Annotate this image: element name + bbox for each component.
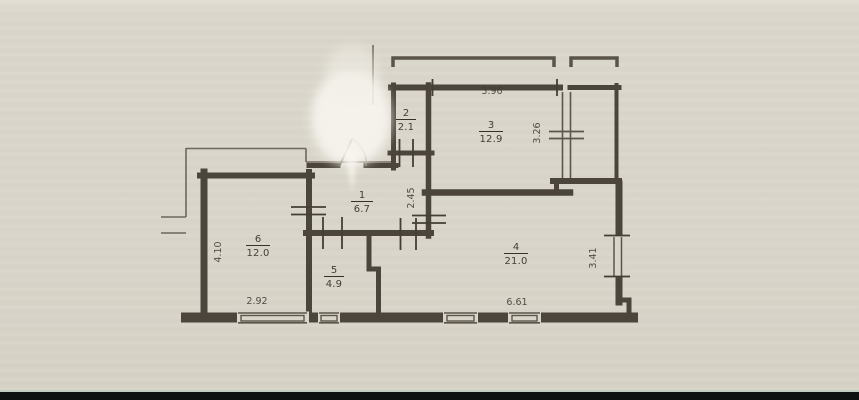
room-label-2: 2 2.1 bbox=[396, 108, 416, 133]
window-symbol bbox=[237, 312, 309, 324]
room-label-5: 5 4.9 bbox=[324, 265, 344, 290]
room5-right-wall bbox=[369, 233, 379, 315]
room-area: 2.1 bbox=[398, 122, 415, 133]
room-area: 6.7 bbox=[354, 204, 371, 215]
room-number: 3 bbox=[488, 120, 494, 131]
balcony-window-symbol bbox=[549, 92, 584, 178]
room-number: 2 bbox=[403, 108, 409, 119]
room-label-1: 1 6.7 bbox=[351, 190, 373, 215]
dimension-hall-depth: 2.45 bbox=[406, 187, 417, 208]
window-symbol bbox=[508, 312, 541, 324]
room-number: 5 bbox=[331, 265, 337, 276]
dimension-room4-depth: 3.41 bbox=[588, 247, 599, 268]
dimension-room3-width: 3.96 bbox=[481, 86, 502, 97]
window-opening bbox=[611, 236, 625, 277]
room-label-3: 3 12.9 bbox=[479, 120, 503, 145]
room-number: 6 bbox=[255, 234, 261, 245]
wall-stub bbox=[393, 58, 554, 67]
scanned-floor-plan-photo: 1 6.7 2 2.1 3 12.9 4 21.0 5 4.9 6 12.0 bbox=[0, 0, 859, 400]
watermark-drip bbox=[344, 148, 359, 192]
room-area: 12.9 bbox=[479, 134, 502, 145]
window-sill bbox=[241, 316, 304, 322]
room-area: 4.9 bbox=[326, 279, 343, 290]
room-area: 21.0 bbox=[504, 256, 527, 267]
upper-wall-stubs bbox=[393, 58, 617, 67]
wall-stub bbox=[571, 58, 617, 67]
right-window-symbol bbox=[604, 236, 630, 278]
watermark-shape bbox=[325, 45, 379, 105]
dimension-room4-width: 6.61 bbox=[506, 297, 527, 308]
photo-bottom-edge bbox=[0, 392, 859, 400]
dimension-room3-depth: 3.26 bbox=[532, 122, 543, 143]
window-sill bbox=[512, 316, 537, 322]
window-symbol bbox=[443, 312, 478, 324]
window-sill bbox=[447, 316, 474, 322]
window-sill bbox=[321, 316, 337, 322]
window-symbol bbox=[318, 312, 340, 324]
dimension-room6-depth: 4.10 bbox=[213, 241, 224, 262]
room-number: 1 bbox=[359, 190, 365, 201]
dimension-room6-width: 2.92 bbox=[246, 296, 267, 307]
room-number: 4 bbox=[513, 242, 519, 253]
room-label-4: 4 21.0 bbox=[504, 242, 528, 267]
watermark-blob bbox=[311, 45, 391, 192]
floor-plan: 1 6.7 2 2.1 3 12.9 4 21.0 5 4.9 6 12.0 bbox=[0, 0, 859, 400]
room-label-6: 6 12.0 bbox=[246, 234, 270, 259]
room-area: 12.0 bbox=[246, 248, 269, 259]
